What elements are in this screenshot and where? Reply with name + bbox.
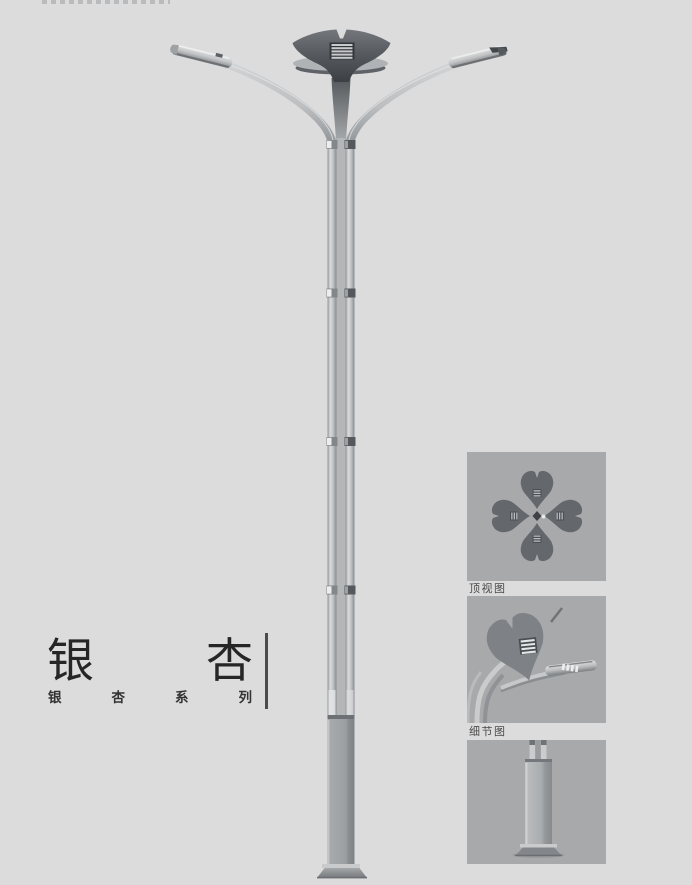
- caption-top-view: 顶视图: [469, 584, 507, 595]
- ginkgo-top-view-cross: [492, 471, 582, 561]
- top-view-image: [467, 452, 606, 581]
- crown-vents: [330, 43, 355, 60]
- page-subtitle-char: 列: [239, 691, 253, 705]
- page-title: 银 杏: [47, 637, 253, 684]
- base-column: [525, 759, 552, 847]
- page-subtitle-char: 系: [175, 691, 189, 705]
- lamp-head-left: [169, 42, 234, 69]
- panel-top-view: [467, 452, 606, 581]
- page-title-char: 银: [47, 637, 94, 684]
- base-pole-tubes: [530, 740, 547, 761]
- base-plate: [513, 844, 565, 858]
- catalog-page: 银 杏 银 杏 系 列: [0, 0, 692, 885]
- caption-detail-view: 细节图: [469, 727, 507, 738]
- lamp-pole: [327, 138, 356, 716]
- page-title-char: 杏: [206, 637, 253, 684]
- page-subtitle-char: 银: [48, 691, 62, 705]
- leaf-stalk: [551, 608, 562, 622]
- page-subtitle-char: 杏: [112, 691, 126, 705]
- hub-highlight: [542, 515, 546, 519]
- hub-diamond: [533, 511, 542, 521]
- ginkgo-crown: [293, 30, 391, 83]
- lamp-base: [317, 715, 367, 878]
- page-subtitle: 银 杏 系 列: [48, 691, 252, 705]
- panel-detail-view: [467, 596, 606, 723]
- detail-view-image: [467, 596, 606, 723]
- detail-lamp-head: [545, 659, 598, 676]
- panel-base-view: [467, 740, 606, 864]
- lamp-head-right: [447, 43, 508, 69]
- crown-stem: [332, 78, 351, 142]
- base-view-image: [467, 740, 606, 864]
- title-divider: [265, 633, 268, 709]
